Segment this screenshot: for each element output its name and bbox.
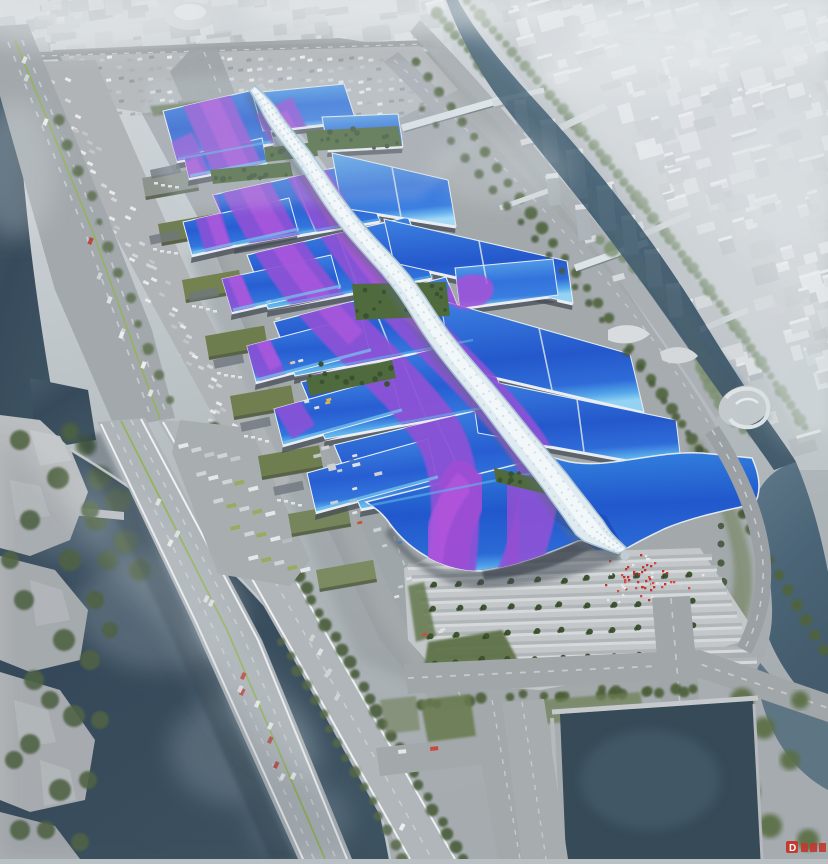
- svg-text:D: D: [789, 843, 796, 854]
